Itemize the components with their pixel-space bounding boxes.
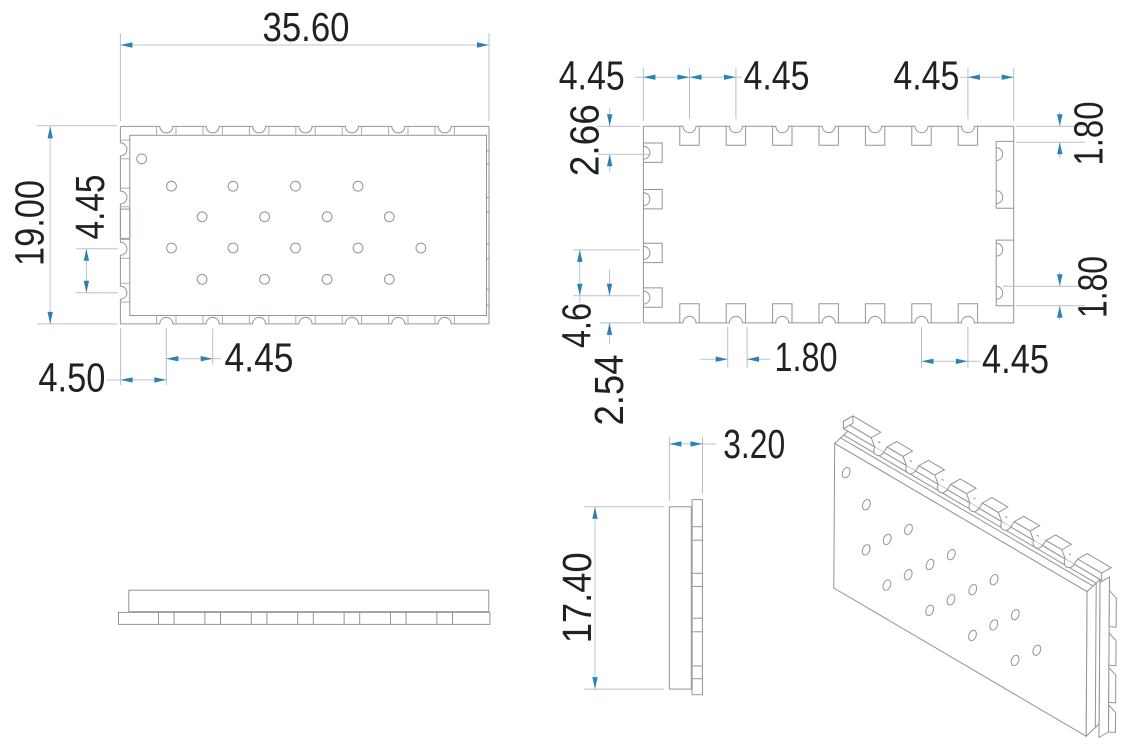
svg-text:4.45: 4.45: [744, 53, 810, 99]
svg-text:1.80: 1.80: [1070, 256, 1116, 318]
svg-text:4.6: 4.6: [554, 303, 600, 348]
svg-text:4.45: 4.45: [893, 53, 959, 99]
svg-text:2.66: 2.66: [562, 104, 608, 176]
svg-text:4.45: 4.45: [225, 335, 294, 381]
svg-text:35.60: 35.60: [263, 4, 350, 50]
svg-text:19.00: 19.00: [7, 180, 53, 266]
svg-text:4.50: 4.50: [38, 354, 105, 400]
svg-text:4.45: 4.45: [559, 53, 625, 99]
svg-text:4.45: 4.45: [982, 336, 1049, 382]
svg-text:2.54: 2.54: [586, 355, 632, 426]
svg-text:1.80: 1.80: [775, 334, 838, 380]
svg-text:1.80: 1.80: [1066, 102, 1112, 166]
svg-text:17.40: 17.40: [554, 552, 600, 643]
svg-text:3.20: 3.20: [723, 421, 785, 467]
svg-text:4.45: 4.45: [67, 175, 113, 240]
